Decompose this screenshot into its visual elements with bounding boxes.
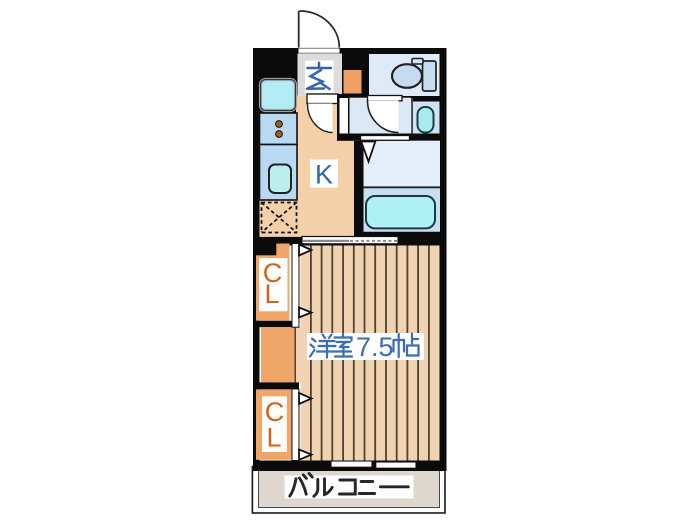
svg-text:L: L: [264, 279, 279, 309]
svg-text:7.5: 7.5: [356, 332, 394, 362]
svg-text:K: K: [315, 160, 333, 190]
svg-text:L: L: [266, 423, 281, 453]
